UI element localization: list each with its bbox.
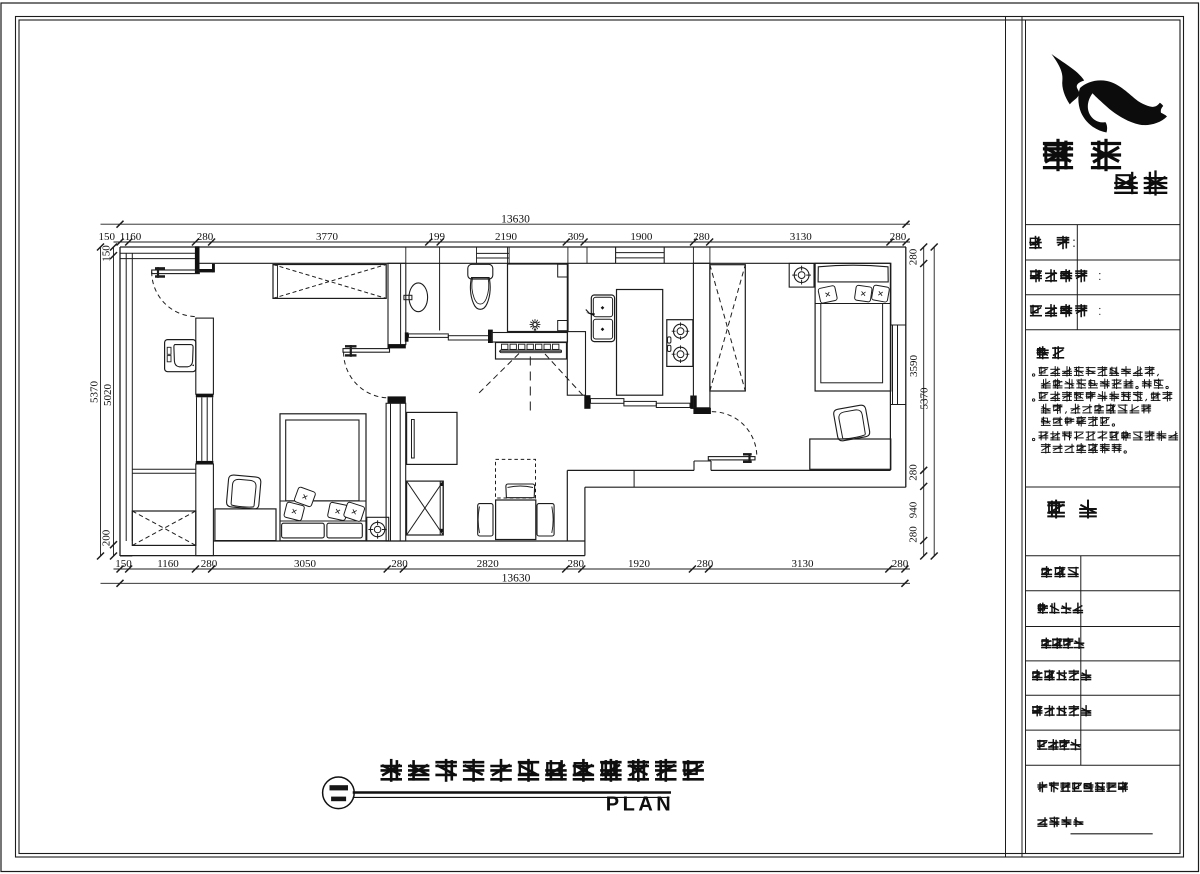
- svg-text:5370: 5370: [919, 387, 931, 410]
- svg-text:940: 940: [908, 501, 920, 518]
- svg-text:280: 280: [693, 231, 710, 243]
- svg-text:280: 280: [391, 558, 408, 570]
- svg-text:2190: 2190: [495, 231, 518, 243]
- svg-text:3050: 3050: [294, 558, 317, 570]
- svg-text:1160: 1160: [120, 231, 142, 243]
- svg-text:1920: 1920: [628, 558, 651, 570]
- svg-text:1160: 1160: [157, 558, 179, 570]
- svg-text:5370: 5370: [88, 381, 100, 404]
- svg-text:280: 280: [890, 231, 907, 243]
- svg-text:309: 309: [568, 231, 585, 243]
- svg-text:13630: 13630: [501, 214, 530, 226]
- svg-text:200: 200: [101, 529, 113, 546]
- svg-text:150: 150: [101, 245, 113, 262]
- svg-text:13630: 13630: [502, 573, 531, 585]
- svg-text:3770: 3770: [316, 231, 339, 243]
- svg-text:280: 280: [892, 558, 909, 570]
- svg-text:280: 280: [908, 526, 920, 543]
- svg-text:199: 199: [428, 231, 445, 243]
- svg-text:280: 280: [201, 558, 218, 570]
- svg-text:3130: 3130: [792, 558, 815, 570]
- svg-text:280: 280: [908, 248, 920, 265]
- svg-text:3130: 3130: [790, 231, 813, 243]
- svg-text:150: 150: [98, 231, 115, 243]
- svg-text:280: 280: [567, 558, 584, 570]
- svg-text:3590: 3590: [908, 355, 920, 378]
- svg-text:280: 280: [697, 558, 714, 570]
- svg-text:PLAN: PLAN: [606, 794, 674, 816]
- svg-text:280: 280: [908, 464, 920, 481]
- svg-text:2820: 2820: [477, 558, 500, 570]
- svg-text:5020: 5020: [102, 384, 114, 407]
- svg-text:150: 150: [115, 558, 132, 570]
- svg-text:280: 280: [197, 231, 214, 243]
- svg-text:1900: 1900: [630, 231, 653, 243]
